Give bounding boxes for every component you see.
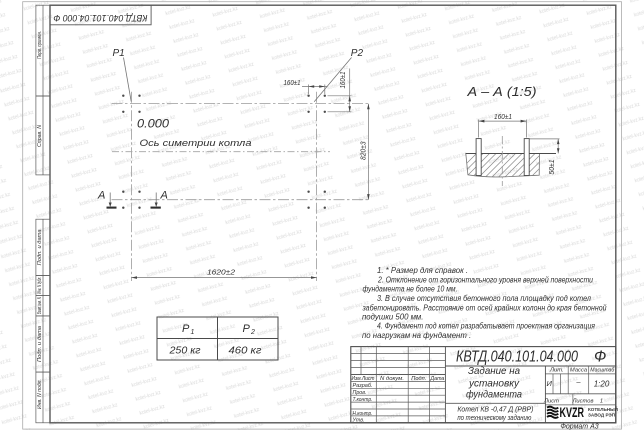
svg-text:КОТЕЛЬНЫЙ: КОТЕЛЬНЫЙ [588,405,618,412]
svg-text:–: – [575,377,581,386]
svg-text:Изм.Лист: Изм.Лист [352,376,375,382]
svg-text:Листов: Листов [571,399,593,405]
svg-text:0.000: 0.000 [137,119,170,131]
svg-text:Лит.: Лит. [549,368,564,374]
svg-text:подушки 500 мм.: подушки 500 мм. [362,313,423,322]
svg-text:Подп. и дата: Подп. и дата [37,326,43,362]
svg-text:Подп. и дата: Подп. и дата [37,229,43,265]
svg-text:КВТД.040.101.04.000: КВТД.040.101.04.000 [456,349,578,366]
svg-text:ЗАВОД РЭП: ЗАВОД РЭП [588,412,615,417]
svg-text:160±1: 160±1 [340,71,347,88]
svg-text:Инв. N дубл.: Инв. N дубл. [37,277,43,294]
svg-text:Справ. N: Справ. N [37,125,43,147]
svg-text:Н.контр.: Н.контр. [353,411,373,417]
svg-text:KVZR: KVZR [560,405,585,420]
svg-text:Формат А3: Формат А3 [560,424,598,430]
svg-text:Дата: Дата [429,376,445,382]
svg-text:Масштаб: Масштаб [590,368,615,374]
svg-text:2: 2 [250,329,255,336]
svg-text:820±3: 820±3 [358,141,367,160]
svg-text:160±1: 160±1 [284,80,301,87]
svg-text:КВТД.040.101.04.000 Ф: КВТД.040.101.04.000 Ф [54,13,148,23]
svg-text:250 кг: 250 кг [168,345,200,357]
svg-text:3. В случае отсутствия бетонно: 3. В случае отсутствия бетонного пола пл… [377,294,592,303]
svg-text:50±1: 50±1 [547,160,556,175]
svg-text:Пров.: Пров. [353,390,367,396]
svg-text:Котел КВ -0,47 Д (РВР): Котел КВ -0,47 Д (РВР) [457,407,533,414]
svg-text:Задание на: Задание на [468,365,520,377]
svg-text:N докум.: N докум. [380,376,404,382]
svg-text:А – А (1:5): А – А (1:5) [466,85,536,99]
svg-text:Т.контр.: Т.контр. [353,397,373,403]
svg-text:1620±2: 1620±2 [207,270,235,277]
svg-text:фундамента: фундамента [466,389,522,401]
svg-text:A: A [97,190,105,202]
svg-text:Утв.: Утв. [352,418,365,424]
svg-text:Лист: Лист [543,399,559,405]
svg-text:Перв. примен.: Перв. примен. [37,31,43,59]
svg-text:A: A [160,190,168,202]
svg-text:Инв. N подл.: Инв. N подл. [37,379,43,409]
svg-text:2. Отклонение от горизонтально: 2. Отклонение от горизонтального уровня … [377,276,593,285]
svg-text:1. * Размер для справок .: 1. * Размер для справок . [377,266,468,275]
svg-text:4. Фундамент под котел разраба: 4. Фундамент под котел разрабатывает про… [377,322,596,331]
svg-text:по нагрузкам на фундамент .: по нагрузкам на фундамент . [362,331,471,340]
svg-text:Р: Р [243,323,251,335]
svg-text:1: 1 [600,399,603,405]
svg-text:забетонировать. Расстояние от: забетонировать. Расстояние от осей крайн… [362,304,607,313]
svg-text:Разраб.: Разраб. [353,383,373,389]
svg-text:160±1: 160±1 [494,114,512,121]
svg-text:1:20: 1:20 [594,380,610,389]
svg-text:по техническому заданию: по техническому заданию [457,414,532,422]
svg-text:И: И [547,379,553,388]
svg-text:Р: Р [182,323,190,335]
svg-text:фундамента не более 10 мм.: фундамента не более 10 мм. [363,285,458,294]
svg-text:P2: P2 [351,48,364,59]
svg-text:Масса: Масса [570,368,588,374]
svg-text:Ось симетрии котла: Ось симетрии котла [140,138,252,149]
svg-text:460 кг: 460 кг [229,345,262,357]
svg-text:Ф: Ф [594,349,606,366]
svg-text:P1: P1 [113,48,125,59]
svg-text:1: 1 [191,329,195,336]
svg-text:Взам. инв. N: Взам. инв. N [37,297,43,314]
svg-text:Подп.: Подп. [411,376,426,382]
